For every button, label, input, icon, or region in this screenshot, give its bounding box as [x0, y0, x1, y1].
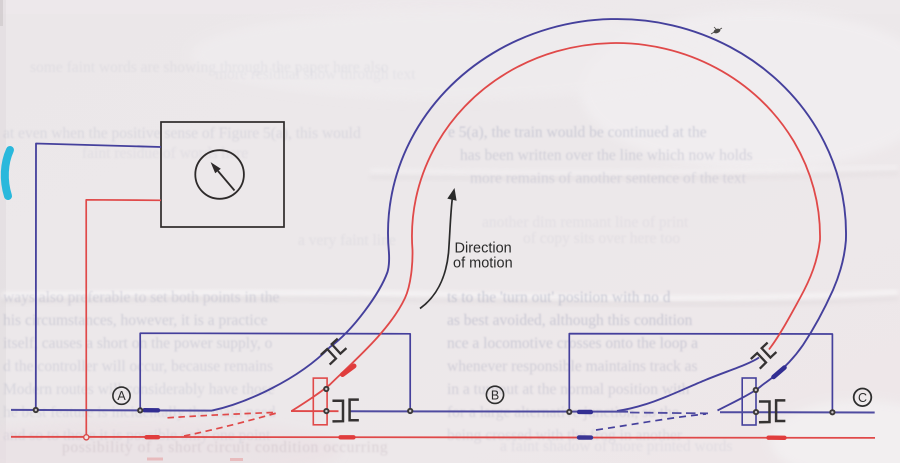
svg-text:more residual show through tex: more residual show through text — [215, 66, 416, 83]
svg-text:e 5(a), the train would be con: e 5(a), the train would be continued at … — [448, 124, 707, 141]
svg-text:in a turnout at the normal pos: in a turnout at the normal position with — [447, 381, 690, 398]
svg-text:his circumstances, however, it: his circumstances, however, it is a prac… — [3, 312, 268, 329]
svg-text:of motion: of motion — [453, 256, 513, 272]
svg-text:C: C — [858, 391, 867, 405]
svg-text:a faint shadow of more printed: a faint shadow of more printed words — [500, 438, 732, 455]
svg-text:B: B — [491, 388, 499, 402]
svg-text:at even when the positive sens: at even when the positive sense of Figur… — [3, 125, 361, 142]
svg-text:a very faint line: a very faint line — [298, 232, 396, 249]
svg-text:possibility of a short circuit: possibility of a short circuit condition… — [62, 439, 388, 456]
svg-text:itself, causes a short on the: itself, causes a short on the power supp… — [3, 335, 273, 352]
svg-text:more remains of another senten: more remains of another sentence of the … — [470, 170, 747, 187]
svg-text:has been written over the line: has been written over the line which now… — [460, 147, 753, 164]
svg-text:as best avoided, although this: as best avoided, although this condition — [447, 312, 693, 329]
svg-text:of copy sits over here too: of copy sits over here too — [523, 230, 680, 247]
svg-text:Direction: Direction — [455, 241, 512, 257]
svg-text:ts to the 'turn out' position: ts to the 'turn out' position with no d — [447, 289, 671, 306]
svg-text:nce a locomotive crosses onto: nce a locomotive crosses onto the loop a — [447, 335, 698, 352]
svg-text:d the controller will occur, b: d the controller will occur, because rem… — [3, 358, 273, 375]
svg-text:Modern routes will considerabl: Modern routes will considerably have tho… — [3, 381, 275, 398]
svg-text:ways also preferable to set bo: ways also preferable to set both points … — [3, 289, 279, 306]
svg-text:whenever responsible maintains: whenever responsible maintains track as — [447, 358, 698, 375]
svg-text:faint residue of words here: faint residue of words here — [82, 145, 248, 162]
svg-text:another dim remnant line of pr: another dim remnant line of print — [482, 214, 689, 231]
svg-text:A: A — [117, 389, 126, 403]
